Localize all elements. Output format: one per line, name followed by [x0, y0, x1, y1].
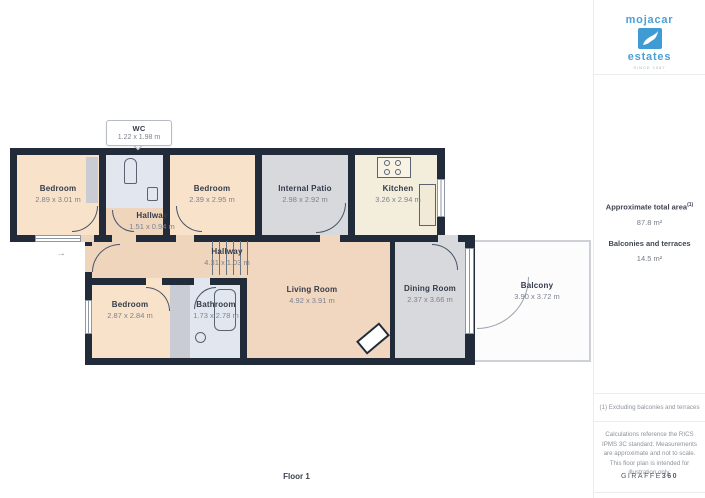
sidebar-divider-3	[594, 421, 705, 422]
room-dims: 3.26 x 2.94 m	[375, 195, 420, 204]
giraffe360-brand: GIRAFFE360	[594, 473, 705, 480]
room-dims: 2.98 x 2.92 m	[278, 195, 331, 204]
room-name: Bedroom	[107, 300, 152, 309]
glass-door-balcony	[465, 248, 474, 334]
wc-shower-fixture	[124, 158, 137, 184]
label-bedroom-top-center: Bedroom 2.39 x 2.95 m	[189, 184, 234, 204]
logo-tagline: SINCE 1987	[594, 65, 705, 70]
room-dims: 4.31 x 1.03 m	[204, 258, 249, 267]
label-kitchen: Kitchen 3.26 x 2.94 m	[375, 184, 420, 204]
wave-logo-icon	[638, 28, 662, 49]
stove-icon	[377, 157, 411, 178]
label-balcony: Balcony 3.90 x 3.72 m	[514, 281, 559, 301]
total-area-title: Approximate total area(1)	[594, 202, 705, 212]
label-bedroom-bottom-left: Bedroom 2.87 x 2.84 m	[107, 300, 152, 320]
label-dining-room: Dining Room 2.37 x 3.66 m	[404, 284, 456, 304]
total-area-value: 87.8 m²	[594, 218, 705, 227]
entry-arrow-icon: →	[56, 248, 66, 259]
closet-bedroom-top-left	[86, 157, 98, 203]
wc-sink-fixture	[147, 187, 158, 201]
opening-bedroom-top-center	[176, 235, 194, 242]
balconies-value: 14.5 m²	[594, 254, 705, 263]
opening-bedroom-bottom-left	[146, 278, 162, 285]
brand-left: GIRAFFE	[621, 473, 662, 480]
room-dims: 1.73 x 2.78 m	[193, 311, 238, 320]
sidebar-divider-2	[594, 393, 705, 394]
opening-bathroom	[194, 278, 210, 285]
label-bedroom-top-left: Bedroom 2.89 x 3.01 m	[35, 184, 80, 204]
sidebar-divider-1	[594, 74, 705, 75]
room-dims: 4.92 x 3.91 m	[287, 296, 338, 305]
toilet-fixture	[195, 332, 206, 343]
opening-patio	[320, 235, 340, 242]
room-dims: 3.90 x 3.72 m	[514, 292, 559, 301]
room-name: Balcony	[514, 281, 559, 290]
room-dims: 1.22 x 1.98 m	[107, 134, 171, 141]
disclaimer-text: Calculations reference the RICS IPMS 3C …	[599, 430, 700, 478]
room-name: Dining Room	[404, 284, 456, 293]
room-name: Hallway	[129, 211, 174, 220]
room-dims: 2.87 x 2.84 m	[107, 311, 152, 320]
room-name: Bedroom	[35, 184, 80, 193]
label-hallway-small: Hallway 1.51 x 0.94 m	[129, 211, 174, 231]
room-name: Hallway	[204, 247, 249, 256]
balconies-label: Balconies and terraces	[594, 239, 705, 248]
agency-logo: mojacar estates SINCE 1987	[594, 14, 705, 70]
window-bedroom-bottom-left	[85, 300, 92, 334]
area-summary: Approximate total area(1) 87.8 m² Balcon…	[594, 202, 705, 263]
room-name: Internal Patio	[278, 184, 331, 193]
room-dims: 2.39 x 2.95 m	[189, 195, 234, 204]
kitchen-counter	[419, 184, 436, 226]
label-bathroom: Bathroom 1.73 x 2.78 m	[193, 300, 238, 320]
opening-bedroom-top-left	[80, 235, 94, 242]
area-footnote: (1) Excluding balconies and terraces	[594, 404, 705, 411]
window-kitchen	[437, 179, 445, 217]
label-internal-patio: Internal Patio 2.98 x 2.92 m	[278, 184, 331, 204]
total-area-title-text: Approximate total area	[606, 203, 687, 212]
window-bedroom-top-left	[35, 235, 81, 242]
opening-entry	[85, 246, 92, 272]
opening-wc	[112, 235, 136, 242]
room-dims: 2.89 x 3.01 m	[35, 195, 80, 204]
room-dims: 2.37 x 3.66 m	[404, 295, 456, 304]
logo-word-bottom: estates	[594, 51, 705, 63]
floorplan-page: → Bedroom 2.89 x 3.01 m Bedroom 2.39 x 2…	[0, 0, 705, 498]
closet-bottom	[170, 285, 190, 358]
brand-right: 360	[662, 473, 678, 480]
logo-word-top: mojacar	[594, 14, 705, 26]
room-dims: 1.51 x 0.94 m	[129, 222, 174, 231]
room-name: WC	[107, 124, 171, 133]
room-name: Bathroom	[193, 300, 238, 309]
label-living-room: Living Room 4.92 x 3.91 m	[287, 285, 338, 305]
room-name: Kitchen	[375, 184, 420, 193]
sidebar-divider-4	[594, 492, 705, 493]
room-name: Living Room	[287, 285, 338, 294]
wc-callout: WC 1.22 x 1.98 m	[106, 120, 172, 146]
floor-label: Floor 1	[0, 472, 593, 481]
label-hallway-long: Hallway 4.31 x 1.03 m	[204, 247, 249, 267]
total-area-superscript: (1)	[687, 202, 693, 208]
room-name: Bedroom	[189, 184, 234, 193]
opening-dining	[438, 235, 458, 242]
